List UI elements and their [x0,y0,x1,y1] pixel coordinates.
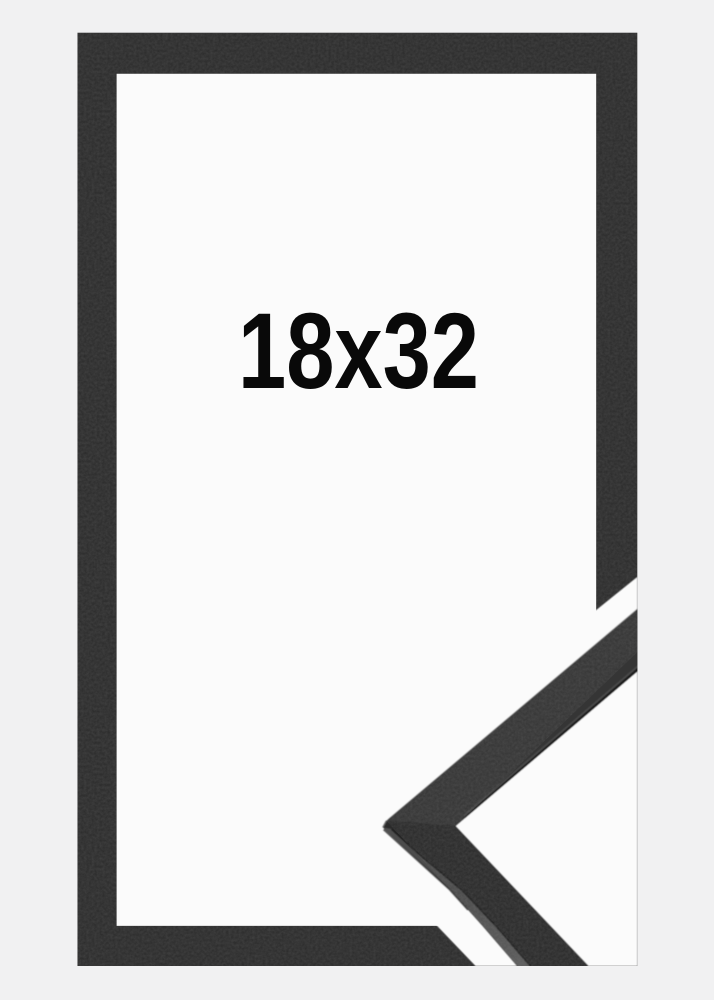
svg-text:18x32: 18x32 [238,290,479,411]
